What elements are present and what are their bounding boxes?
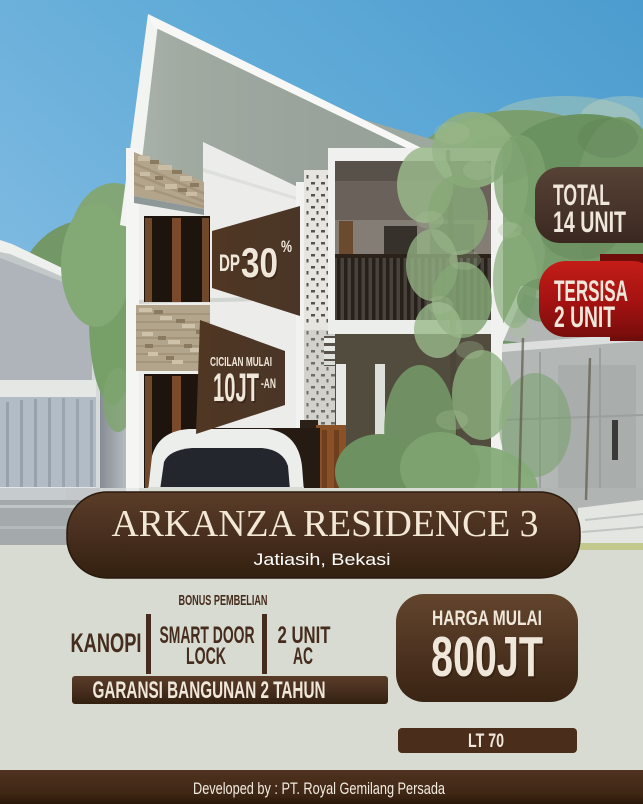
- svg-text:DP: DP: [219, 250, 240, 277]
- svg-text:30: 30: [241, 239, 278, 286]
- svg-text:KANOPI: KANOPI: [71, 628, 142, 658]
- svg-text:10JT: 10JT: [213, 366, 259, 410]
- svg-text:AC: AC: [293, 643, 313, 670]
- svg-text:ARKANZA RESIDENCE 3: ARKANZA RESIDENCE 3: [112, 503, 539, 545]
- svg-text:Developed by : PT. Royal Gemil: Developed by : PT. Royal Gemilang Persad…: [193, 779, 445, 798]
- svg-text:800JT: 800JT: [431, 625, 543, 689]
- svg-text:LT 70: LT 70: [468, 731, 504, 752]
- svg-text:LOCK: LOCK: [186, 643, 226, 670]
- svg-text:14 UNIT: 14 UNIT: [553, 206, 626, 239]
- svg-text:BONUS PEMBELIAN: BONUS PEMBELIAN: [179, 592, 268, 609]
- svg-text:2 UNIT: 2 UNIT: [554, 301, 615, 334]
- svg-text:GARANSI BANGUNAN 2 TAHUN: GARANSI BANGUNAN 2 TAHUN: [93, 677, 326, 704]
- svg-text:%: %: [281, 237, 292, 256]
- svg-text:Jatiasih, Bekasi: Jatiasih, Bekasi: [254, 550, 391, 569]
- svg-text:-AN: -AN: [261, 375, 276, 391]
